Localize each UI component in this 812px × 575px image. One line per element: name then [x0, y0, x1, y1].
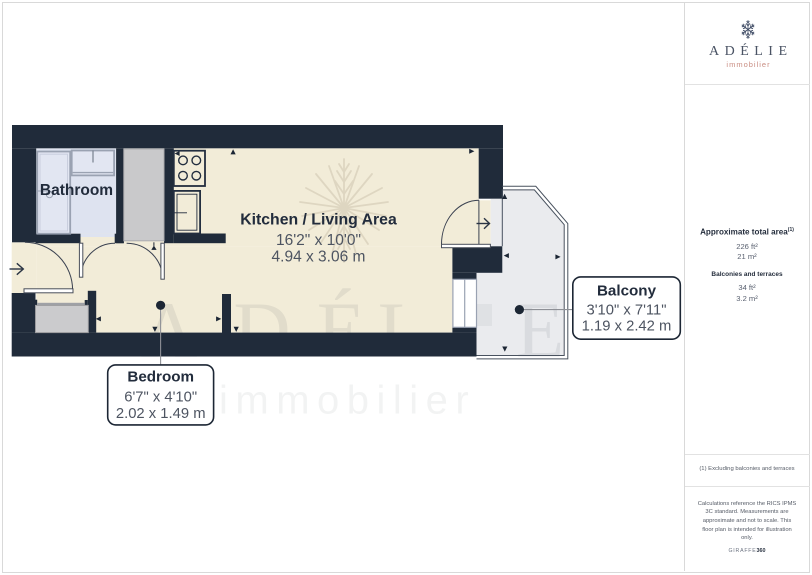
svg-text:4.94 x 3.06 m: 4.94 x 3.06 m	[272, 248, 366, 265]
svg-text:D: D	[233, 288, 290, 375]
svg-text:3'10" x 7'11": 3'10" x 7'11"	[586, 303, 666, 319]
svg-text:É: É	[317, 288, 365, 375]
svg-text:Kitchen / Living Area: Kitchen / Living Area	[240, 211, 397, 228]
svg-text:Balcony: Balcony	[597, 283, 657, 300]
svg-text:Bedroom: Bedroom	[127, 368, 194, 385]
svg-text:A: A	[140, 288, 197, 375]
svg-text:Bathroom: Bathroom	[40, 182, 113, 199]
svg-text:1.19 x 2.42 m: 1.19 x 2.42 m	[582, 319, 672, 335]
svg-text:16'2" x 10'0": 16'2" x 10'0"	[276, 232, 361, 249]
svg-text:L: L	[378, 288, 426, 375]
svg-text:E: E	[516, 288, 564, 375]
svg-text:immobilier: immobilier	[219, 379, 476, 423]
svg-text:6'7" x 4'10": 6'7" x 4'10"	[124, 389, 197, 405]
svg-text:2.02 x 1.49 m: 2.02 x 1.49 m	[116, 406, 206, 422]
